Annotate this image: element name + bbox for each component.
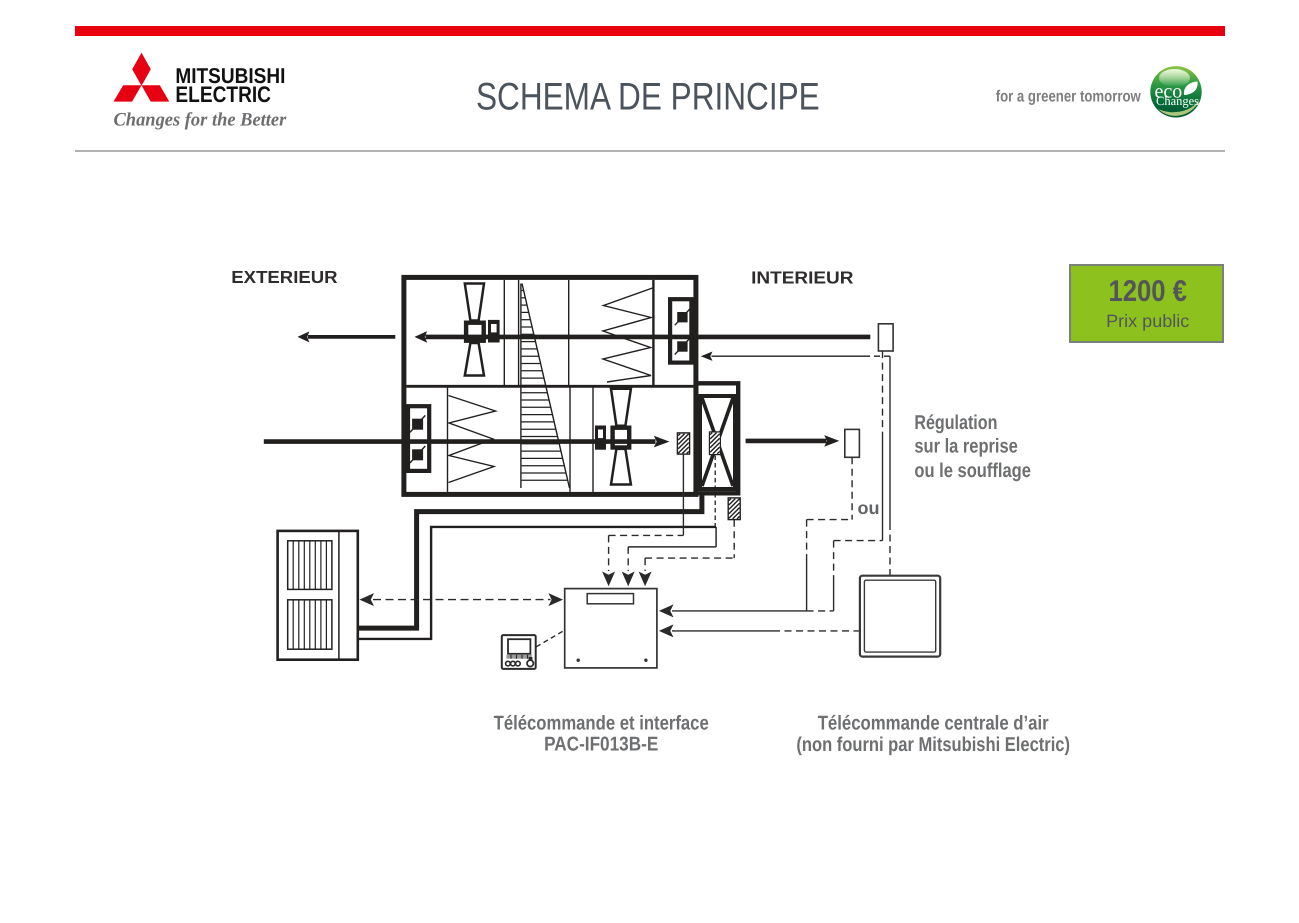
svg-text:ou: ou <box>858 498 880 518</box>
svg-text:(non fourni par Mitsubishi Ele: (non fourni par Mitsubishi Electric) <box>796 734 1070 756</box>
svg-text:Télécommande centrale d’air: Télécommande centrale d’air <box>818 712 1049 734</box>
svg-text:Régulation: Régulation <box>914 412 997 434</box>
svg-text:PAC-IF013B-E: PAC-IF013B-E <box>544 734 658 756</box>
svg-text:EXTERIEUR: EXTERIEUR <box>231 267 338 287</box>
svg-text:ou le soufflage: ou le soufflage <box>914 460 1031 482</box>
svg-text:sur la reprise: sur la reprise <box>914 436 1017 458</box>
svg-text:INTERIEUR: INTERIEUR <box>751 267 854 287</box>
svg-text:Télécommande et interface: Télécommande et interface <box>494 712 709 734</box>
